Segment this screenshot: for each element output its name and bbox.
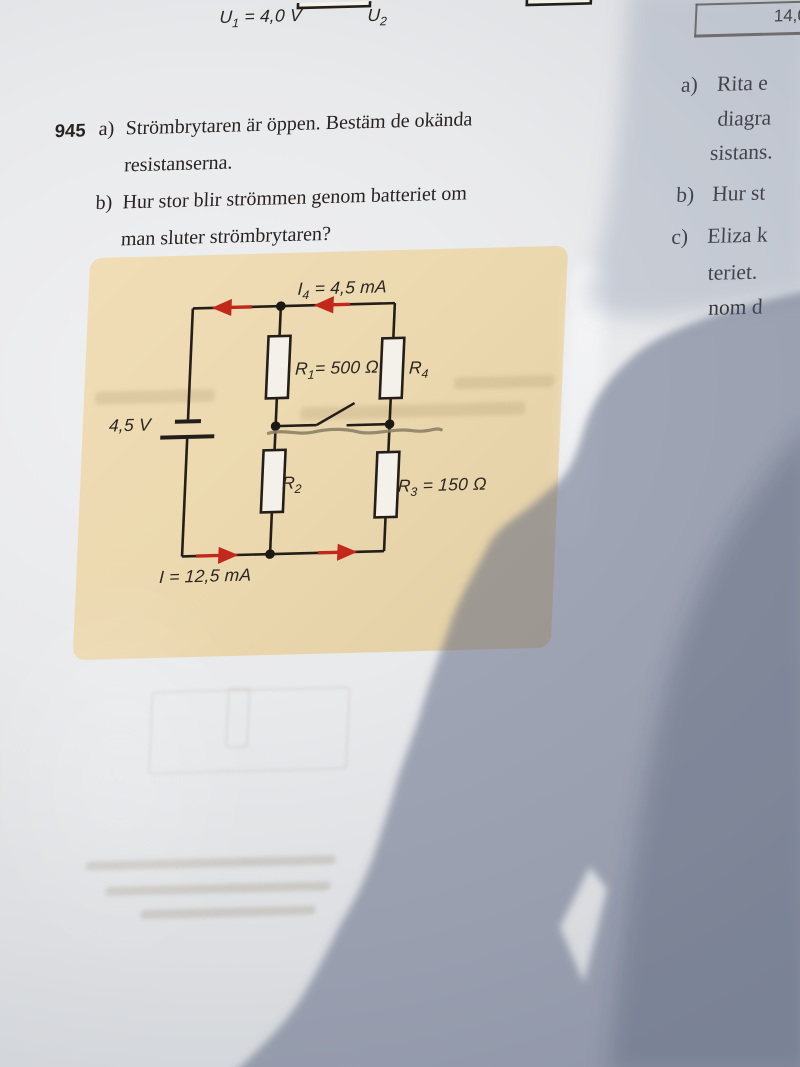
photographer-shadow-overlay — [0, 0, 800, 1067]
right-page-cool-tint — [585, 0, 800, 318]
photographed-textbook-page: U1 = 4,0 V U2 14,0 945 a) Strömbrytaren … — [0, 0, 800, 1067]
